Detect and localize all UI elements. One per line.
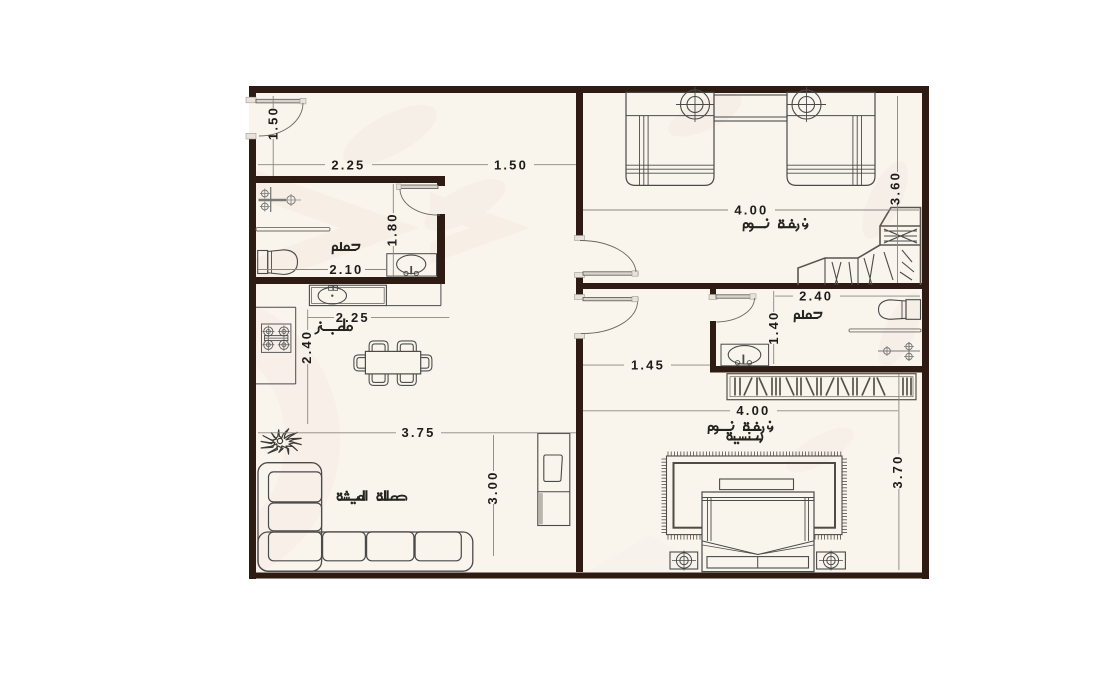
svg-text:1.40: 1.40 (766, 311, 781, 345)
svg-text:3.70: 3.70 (890, 454, 905, 488)
svg-text:1.80: 1.80 (384, 212, 399, 246)
svg-text:2.25: 2.25 (336, 310, 370, 325)
svg-text:3.60: 3.60 (887, 171, 902, 205)
svg-text:1.45: 1.45 (631, 358, 665, 373)
svg-text:3.75: 3.75 (401, 425, 435, 440)
svg-text:4.00: 4.00 (736, 403, 770, 418)
svg-text:2.40: 2.40 (799, 289, 833, 304)
svg-text:4.00: 4.00 (734, 203, 768, 218)
svg-text:2.40: 2.40 (299, 330, 314, 364)
svg-text:3.00: 3.00 (485, 470, 500, 504)
svg-text:1.50: 1.50 (494, 157, 528, 172)
svg-text:1.50: 1.50 (266, 106, 281, 140)
svg-text:2.10: 2.10 (329, 262, 363, 277)
svg-text:2.25: 2.25 (331, 157, 365, 172)
